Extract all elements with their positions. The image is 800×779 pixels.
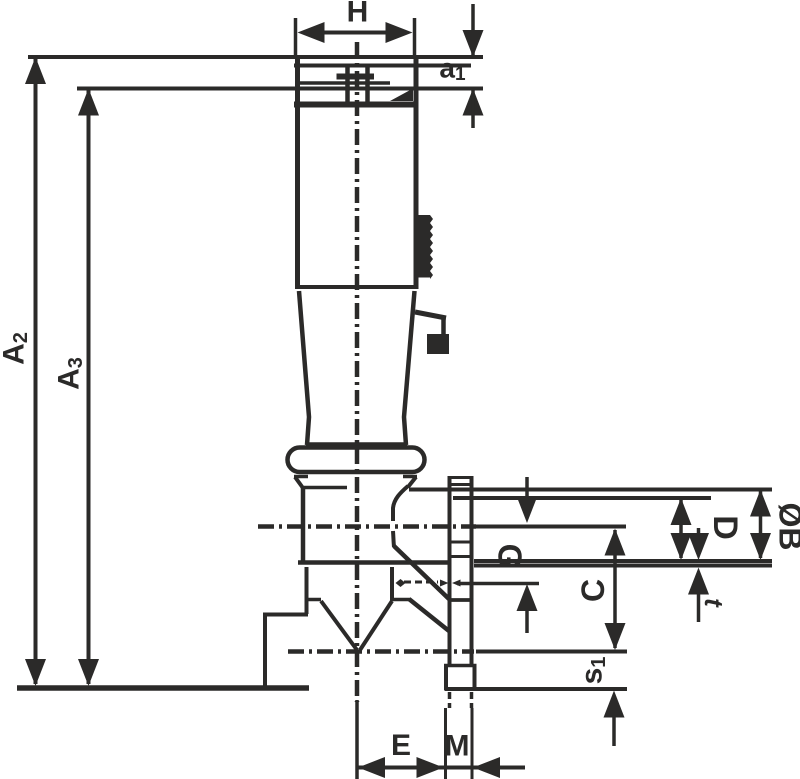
svg-text:H: H	[347, 0, 369, 29]
svg-text:A3: A3	[53, 357, 88, 390]
svg-text:ØB: ØB	[773, 503, 800, 551]
svg-text:D: D	[706, 515, 744, 540]
svg-text:M: M	[445, 730, 470, 763]
svg-text:E: E	[391, 729, 411, 762]
svg-text:C: C	[575, 579, 611, 602]
svg-text:G: G	[492, 544, 529, 570]
svg-text:A2: A2	[0, 332, 32, 365]
svg-text:s1: s1	[576, 657, 611, 685]
svg-text:t: t	[699, 598, 729, 608]
